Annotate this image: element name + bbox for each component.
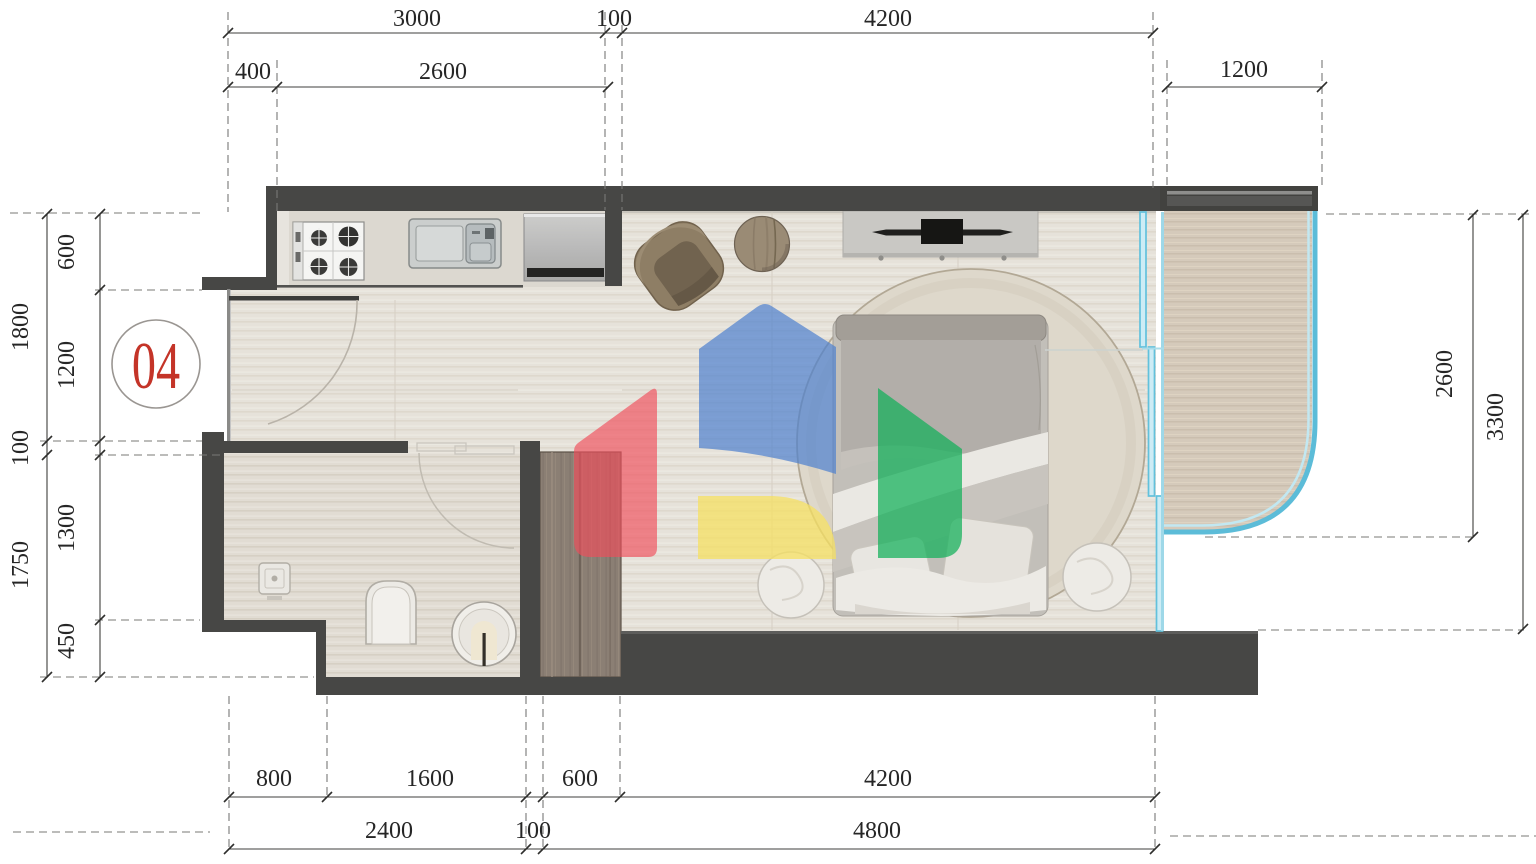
svg-text:450: 450: [54, 623, 80, 659]
svg-text:600: 600: [54, 234, 80, 270]
svg-text:100: 100: [515, 818, 551, 844]
svg-text:4200: 4200: [864, 766, 912, 792]
svg-text:4200: 4200: [864, 6, 912, 32]
svg-text:4800: 4800: [853, 818, 901, 844]
svg-text:100: 100: [8, 430, 34, 466]
svg-text:1800: 1800: [8, 303, 34, 351]
svg-text:2400: 2400: [365, 818, 413, 844]
svg-text:1200: 1200: [54, 341, 80, 389]
svg-text:3000: 3000: [393, 6, 441, 32]
svg-text:2600: 2600: [1432, 350, 1458, 398]
svg-text:04: 04: [132, 328, 180, 403]
svg-text:1750: 1750: [8, 541, 34, 589]
svg-text:1200: 1200: [1220, 57, 1268, 83]
svg-text:400: 400: [235, 59, 271, 85]
svg-text:600: 600: [562, 766, 598, 792]
svg-text:2600: 2600: [419, 59, 467, 85]
svg-text:100: 100: [596, 6, 632, 32]
svg-text:1600: 1600: [406, 766, 454, 792]
svg-text:3300: 3300: [1483, 393, 1509, 441]
svg-text:1300: 1300: [54, 504, 80, 552]
svg-text:800: 800: [256, 766, 292, 792]
